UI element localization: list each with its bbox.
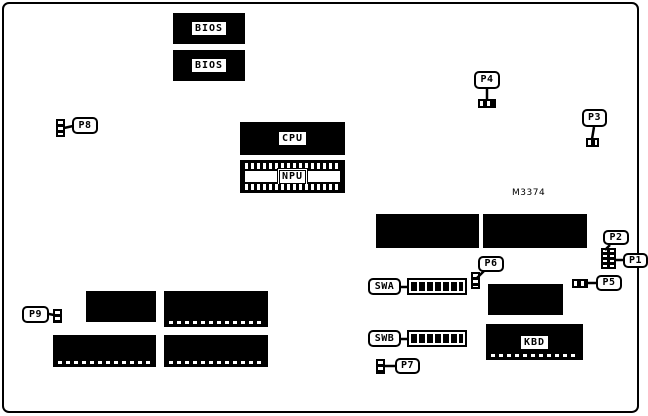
connector-tag-p2-label: P2 [609, 233, 622, 243]
connector-tag-p6: P6 [478, 256, 504, 272]
switch-tag-swb: SWB [368, 330, 401, 347]
connector-tag-p9-label: P9 [29, 310, 42, 320]
connector-tag-p8-label: P8 [78, 121, 91, 131]
connector-tag-p8: P8 [72, 117, 98, 134]
connector-tag-p7-label: P7 [401, 361, 414, 371]
connector-tag-p9: P9 [22, 306, 49, 323]
connector-tag-p4-label: P4 [480, 75, 493, 85]
switch-tag-swa-label: SWA [375, 282, 395, 292]
connector-tag-p2: P2 [603, 230, 629, 245]
switch-tag-swa: SWA [368, 278, 401, 295]
switch-tag-swb-label: SWB [375, 334, 395, 344]
connector-tag-p3-label: P3 [588, 113, 601, 123]
connector-tag-p6-label: P6 [484, 259, 497, 269]
connector-tag-p3: P3 [582, 109, 607, 127]
connector-tag-p4: P4 [474, 71, 500, 89]
connector-tag-p5-label: P5 [602, 278, 615, 288]
connector-tag-p7: P7 [395, 358, 420, 374]
connector-tag-p1: P1 [623, 253, 648, 268]
board-diagram: BIOS BIOS CPU NPU P4 P3 P8 M3374 P2 P1 [0, 0, 648, 416]
connector-tag-p1-label: P1 [629, 256, 642, 266]
connector-tag-p5: P5 [596, 275, 622, 291]
leader-lines [0, 0, 648, 416]
